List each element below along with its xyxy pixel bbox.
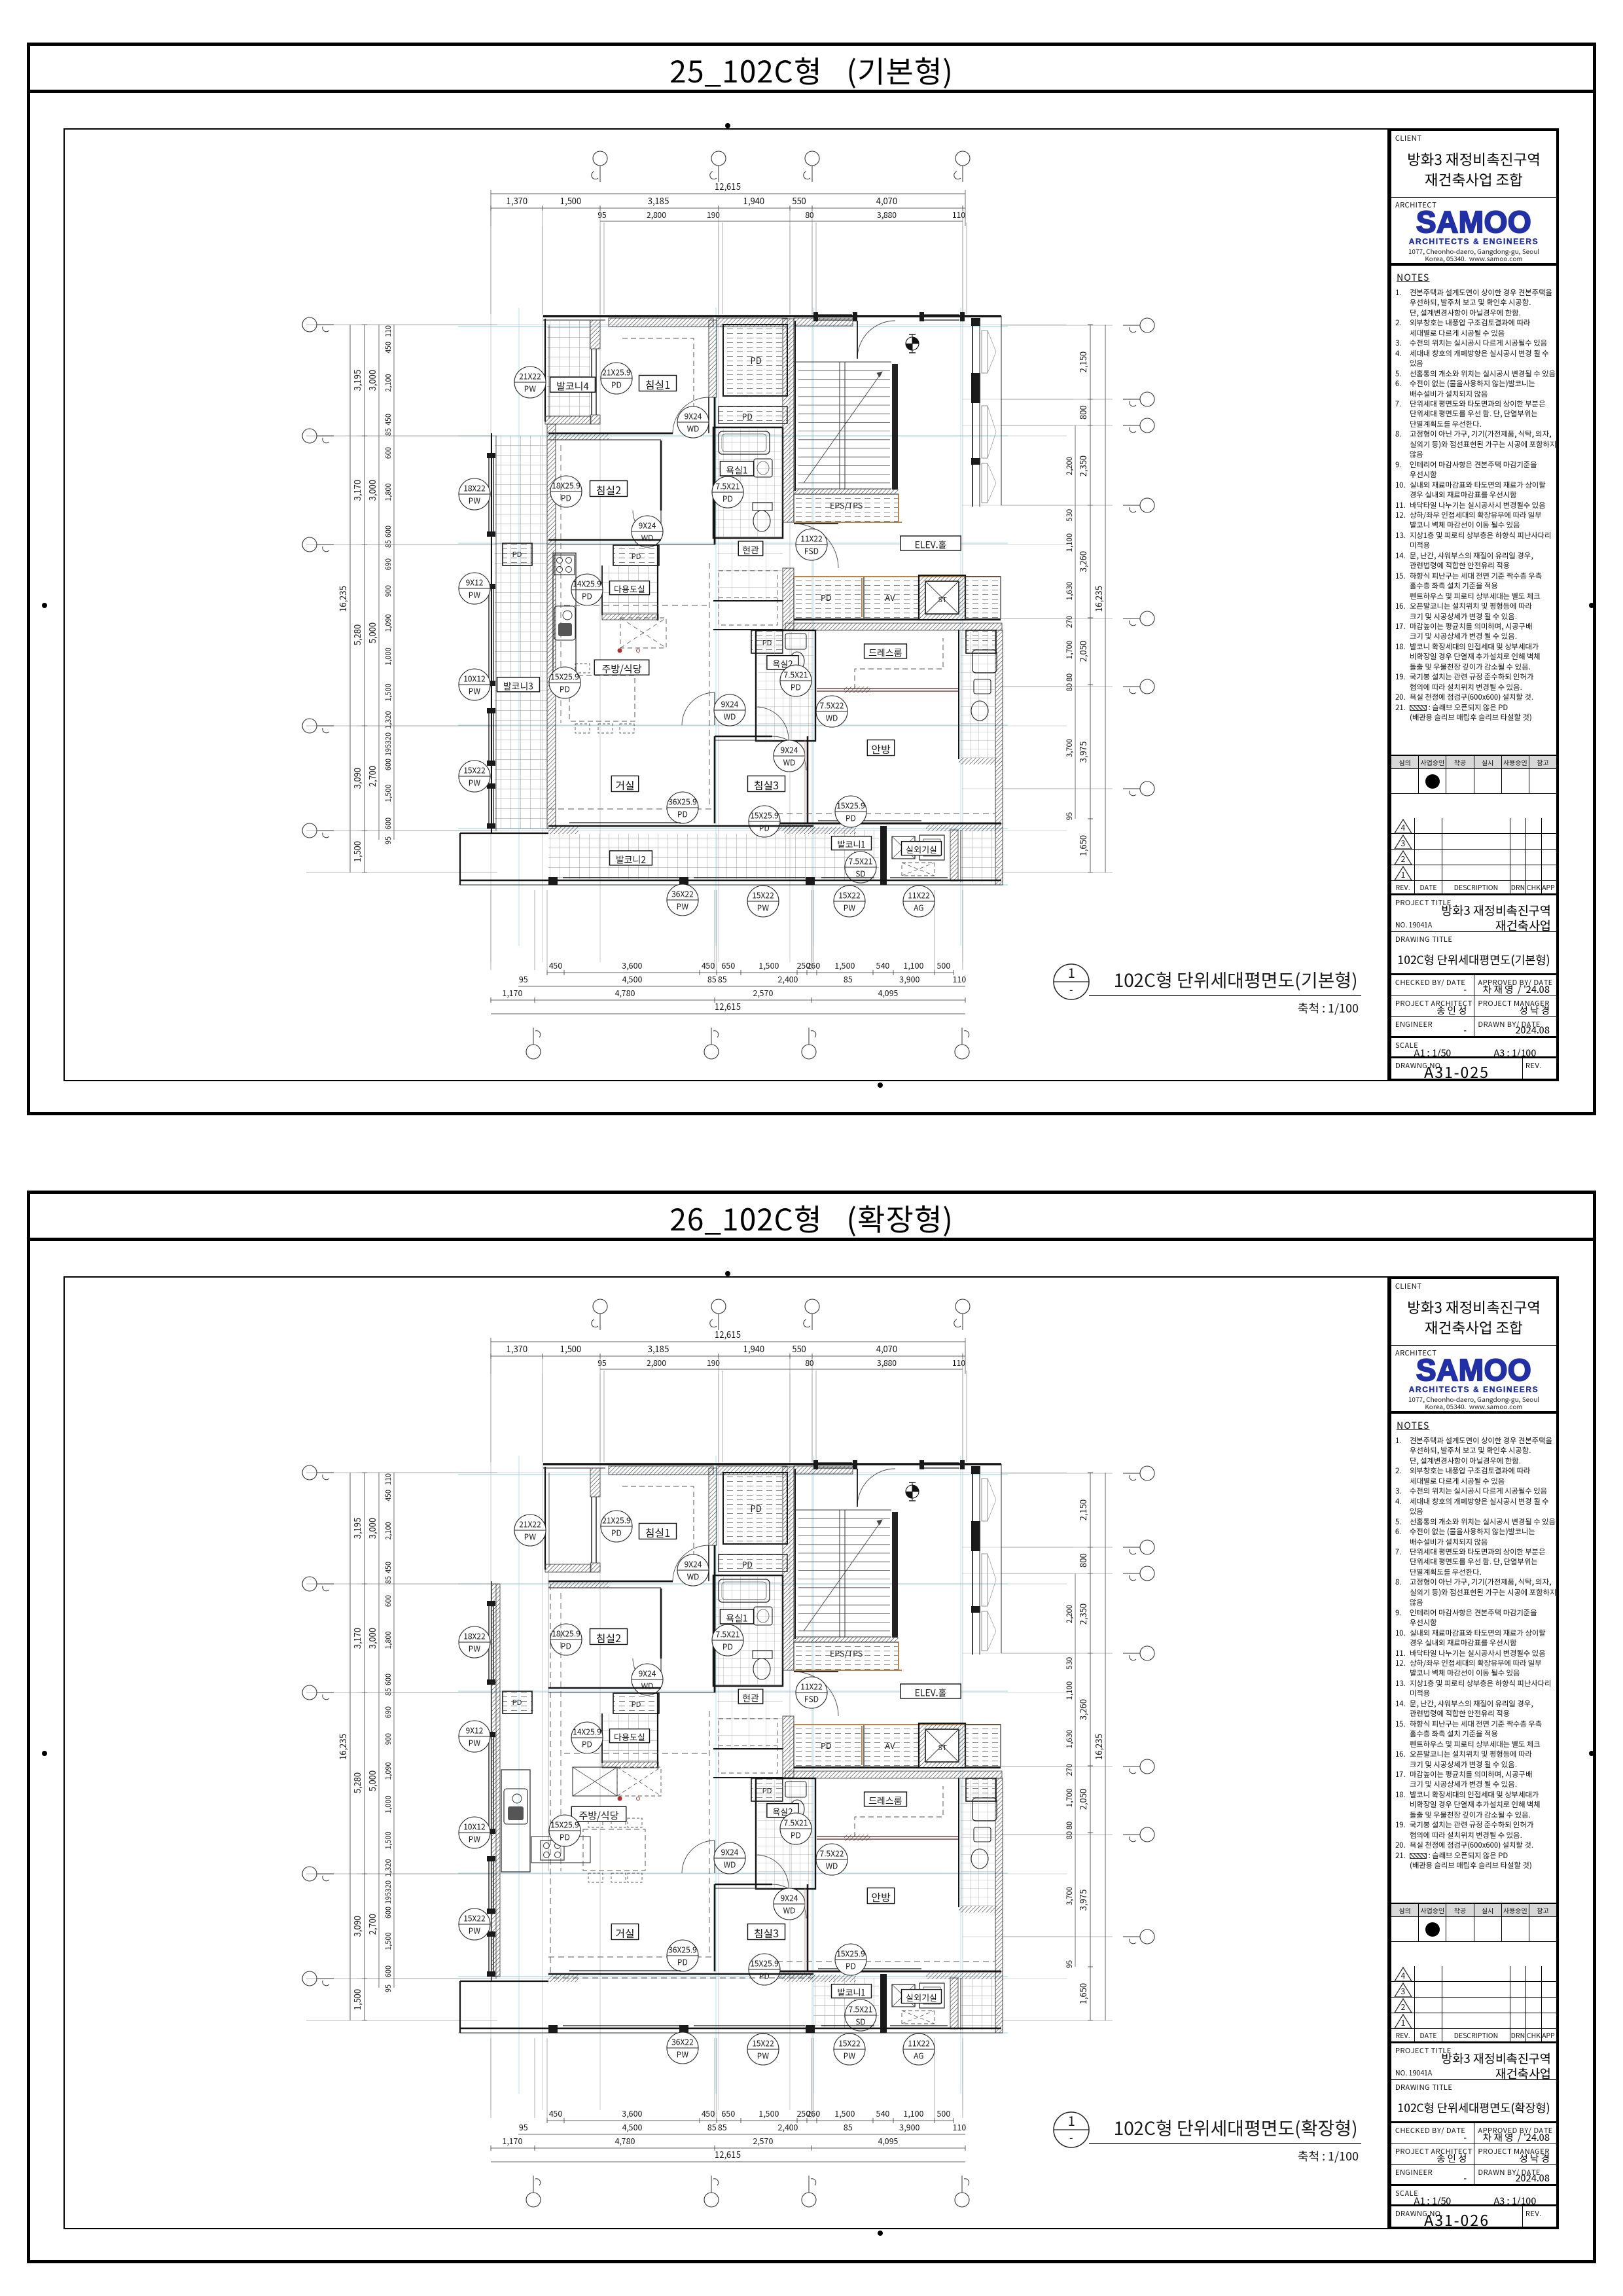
svg-text:85: 85 xyxy=(383,428,393,436)
svg-text:PD: PD xyxy=(561,493,571,504)
svg-text:16,235: 16,235 xyxy=(336,586,349,612)
svg-text:95: 95 xyxy=(519,2121,528,2133)
svg-text:침실3: 침실3 xyxy=(754,1925,779,1941)
svg-text:1,800: 1,800 xyxy=(383,1631,393,1649)
svg-text:110: 110 xyxy=(383,325,393,337)
svg-text:WD: WD xyxy=(724,1859,736,1871)
svg-text:축척 : 1/100: 축척 : 1/100 xyxy=(1298,999,1359,1016)
svg-text:5,280: 5,280 xyxy=(351,624,363,646)
svg-text:2,570: 2,570 xyxy=(753,986,773,999)
svg-text:7.5X22: 7.5X22 xyxy=(820,700,844,711)
svg-text:690: 690 xyxy=(383,558,393,570)
svg-text:PW: PW xyxy=(524,384,537,395)
svg-text:주방/식당: 주방/식당 xyxy=(579,1809,618,1823)
svg-text:1,370: 1,370 xyxy=(507,194,527,207)
svg-text:9X24: 9X24 xyxy=(721,1847,740,1858)
svg-text:ST: ST xyxy=(938,1742,947,1753)
svg-text:PD: PD xyxy=(846,1961,856,1972)
svg-text:PW: PW xyxy=(757,903,770,914)
svg-text:WD: WD xyxy=(687,423,700,435)
svg-text:PW: PW xyxy=(469,1834,481,1845)
svg-text:450: 450 xyxy=(549,2107,563,2119)
svg-text:12,615: 12,615 xyxy=(715,2148,741,2161)
svg-text:PW: PW xyxy=(757,2051,770,2062)
svg-text:14X25.9: 14X25.9 xyxy=(573,1727,601,1738)
svg-text:600: 600 xyxy=(383,1595,393,1607)
svg-text:ST: ST xyxy=(938,594,947,605)
svg-text:PW: PW xyxy=(469,686,481,697)
svg-text:1,500: 1,500 xyxy=(834,959,855,971)
svg-text:600: 600 xyxy=(383,447,393,459)
svg-text:85: 85 xyxy=(707,973,717,985)
svg-text:15X25.9: 15X25.9 xyxy=(836,800,865,812)
svg-text:11X22: 11X22 xyxy=(800,1681,823,1693)
svg-text:4,500: 4,500 xyxy=(622,973,642,985)
svg-text:2,100: 2,100 xyxy=(383,374,393,391)
svg-text:거실: 거실 xyxy=(615,777,634,793)
svg-text:9X24: 9X24 xyxy=(781,745,799,756)
svg-text:600: 600 xyxy=(383,1965,393,1977)
svg-text:80: 80 xyxy=(1064,683,1075,692)
svg-text:110: 110 xyxy=(952,209,965,221)
svg-text:1,650: 1,650 xyxy=(1077,1983,1089,2004)
svg-text:450: 450 xyxy=(383,414,393,425)
svg-text:450: 450 xyxy=(702,959,715,971)
svg-text:80: 80 xyxy=(1064,673,1075,682)
svg-text:안방: 안방 xyxy=(871,741,891,757)
svg-text:15X25.9: 15X25.9 xyxy=(836,1948,865,1960)
svg-text:PD: PD xyxy=(632,551,641,562)
svg-text:1: 1 xyxy=(1067,963,1075,982)
svg-text:21X22: 21X22 xyxy=(519,1519,541,1530)
svg-text:600: 600 xyxy=(383,817,393,829)
svg-text:85: 85 xyxy=(707,2121,717,2133)
svg-text:600: 600 xyxy=(383,1674,393,1685)
svg-text:WD: WD xyxy=(724,711,736,723)
svg-text:900: 900 xyxy=(383,585,393,597)
svg-text:7.5X21: 7.5X21 xyxy=(849,856,873,867)
svg-text:4,070: 4,070 xyxy=(876,194,897,207)
svg-text:AG: AG xyxy=(914,2051,924,2062)
svg-text:PD: PD xyxy=(561,1641,571,1652)
svg-text:450: 450 xyxy=(383,1490,393,1501)
svg-text:195: 195 xyxy=(383,744,393,756)
svg-text:5,280: 5,280 xyxy=(351,1772,363,1794)
svg-text:PW: PW xyxy=(469,495,481,507)
svg-text:PD: PD xyxy=(750,1502,761,1515)
svg-text:540: 540 xyxy=(876,959,890,971)
svg-text:PW: PW xyxy=(677,901,689,912)
svg-text:1,100: 1,100 xyxy=(903,959,923,971)
svg-text:3,170: 3,170 xyxy=(351,1628,363,1649)
svg-text:3,185: 3,185 xyxy=(648,1342,669,1355)
svg-text:7.5X22: 7.5X22 xyxy=(820,1848,844,1859)
svg-text:3,195: 3,195 xyxy=(351,1518,363,1539)
svg-text:1,090: 1,090 xyxy=(383,1762,393,1780)
svg-text:18X25.9: 18X25.9 xyxy=(552,1628,580,1640)
svg-text:95: 95 xyxy=(383,836,393,844)
svg-text:욕실1: 욕실1 xyxy=(726,1611,748,1624)
svg-text:PD: PD xyxy=(611,1528,622,1539)
svg-text:85: 85 xyxy=(844,2121,853,2133)
svg-text:1,170: 1,170 xyxy=(502,986,522,999)
svg-text:18X25.9: 18X25.9 xyxy=(552,480,580,492)
svg-text:1,800: 1,800 xyxy=(383,483,393,501)
svg-text:3,170: 3,170 xyxy=(351,480,363,501)
svg-text:36X25.9: 36X25.9 xyxy=(668,1945,697,1956)
svg-text:2,200: 2,200 xyxy=(1064,457,1075,476)
svg-text:1,650: 1,650 xyxy=(1077,835,1089,856)
svg-text:320: 320 xyxy=(383,732,393,744)
svg-text:110: 110 xyxy=(953,973,967,985)
svg-text:800: 800 xyxy=(1077,1553,1089,1568)
svg-text:4,500: 4,500 xyxy=(622,2121,642,2133)
svg-text:1,500: 1,500 xyxy=(758,959,779,971)
svg-text:7.5X21: 7.5X21 xyxy=(849,2004,873,2015)
svg-text:침실2: 침실2 xyxy=(596,1630,621,1645)
svg-text:3,700: 3,700 xyxy=(1064,739,1075,759)
svg-text:ELEV.홀: ELEV.홀 xyxy=(915,538,947,551)
svg-text:1,700: 1,700 xyxy=(1064,641,1075,660)
svg-text:드레스룸: 드레스룸 xyxy=(868,1794,902,1807)
svg-text:36X22: 36X22 xyxy=(671,889,694,900)
svg-text:WD: WD xyxy=(641,1681,654,1692)
svg-text:1,700: 1,700 xyxy=(1064,1789,1075,1808)
svg-text:PW: PW xyxy=(469,1926,481,1937)
svg-text:AG: AG xyxy=(914,903,924,914)
svg-text:4,095: 4,095 xyxy=(878,986,898,999)
svg-text:3,600: 3,600 xyxy=(622,2107,642,2119)
svg-text:9X24: 9X24 xyxy=(685,411,703,422)
svg-text:발코니2: 발코니2 xyxy=(616,853,647,866)
svg-text:PD: PD xyxy=(791,682,801,693)
svg-text:21X25.9: 21X25.9 xyxy=(602,1515,631,1526)
svg-text:110: 110 xyxy=(953,2121,967,2133)
svg-text:110: 110 xyxy=(952,1357,965,1369)
svg-text:3,975: 3,975 xyxy=(1077,1890,1089,1910)
svg-text:2,100: 2,100 xyxy=(383,1522,393,1539)
svg-text:450: 450 xyxy=(549,959,563,971)
svg-text:9X24: 9X24 xyxy=(639,520,657,531)
svg-text:11X22: 11X22 xyxy=(800,533,823,545)
svg-text:3,000: 3,000 xyxy=(366,1518,378,1539)
svg-text:WD: WD xyxy=(687,1571,700,1583)
svg-text:2,700: 2,700 xyxy=(366,1914,378,1935)
svg-text:16,235: 16,235 xyxy=(336,1734,349,1760)
svg-text:1,500: 1,500 xyxy=(383,1932,393,1950)
svg-text:1,500: 1,500 xyxy=(383,1831,393,1849)
svg-text:15X22: 15X22 xyxy=(463,1913,486,1924)
svg-text:80: 80 xyxy=(1064,1821,1075,1830)
svg-text:PD: PD xyxy=(512,549,522,560)
svg-text:1,370: 1,370 xyxy=(507,1342,527,1355)
svg-text:190: 190 xyxy=(707,1357,720,1369)
svg-text:PW: PW xyxy=(469,1643,481,1655)
svg-text:95: 95 xyxy=(1064,1960,1075,1969)
svg-text:3,880: 3,880 xyxy=(877,209,897,221)
svg-text:PW: PW xyxy=(677,2049,689,2060)
svg-text:PD: PD xyxy=(742,411,753,422)
svg-text:270: 270 xyxy=(1064,615,1075,628)
svg-text:-: - xyxy=(1069,2129,1073,2145)
svg-text:3,900: 3,900 xyxy=(899,973,919,985)
svg-text:1,000: 1,000 xyxy=(383,647,393,665)
svg-text:PD: PD xyxy=(512,1697,522,1708)
svg-text:ELEV.홀: ELEV.홀 xyxy=(915,1686,947,1699)
svg-text:PD: PD xyxy=(821,1739,832,1751)
svg-text:3,700: 3,700 xyxy=(1064,1887,1075,1907)
svg-text:21X22: 21X22 xyxy=(519,371,541,382)
svg-text:600: 600 xyxy=(383,759,393,770)
svg-text:2,800: 2,800 xyxy=(647,1357,666,1369)
svg-text:WD: WD xyxy=(641,533,654,544)
svg-text:PW: PW xyxy=(469,590,481,601)
svg-text:21X25.9: 21X25.9 xyxy=(602,367,631,378)
svg-text:2,050: 2,050 xyxy=(1077,641,1089,662)
svg-text:15X22: 15X22 xyxy=(752,2038,774,2049)
svg-text:AV: AV xyxy=(885,591,896,603)
svg-text:95: 95 xyxy=(597,209,606,221)
svg-text:10X12: 10X12 xyxy=(463,673,486,685)
svg-text:9X12: 9X12 xyxy=(466,577,484,588)
svg-text:3,975: 3,975 xyxy=(1077,742,1089,762)
svg-text:600: 600 xyxy=(383,526,393,537)
svg-text:9X12: 9X12 xyxy=(466,1725,484,1736)
svg-text:1,320: 1,320 xyxy=(383,711,393,728)
svg-text:2,800: 2,800 xyxy=(647,209,666,221)
svg-text:2,050: 2,050 xyxy=(1077,1789,1089,1810)
svg-text:1,630: 1,630 xyxy=(1064,1730,1075,1749)
svg-text:침실3: 침실3 xyxy=(754,777,779,793)
svg-text:15X25.9: 15X25.9 xyxy=(750,810,779,821)
svg-text:650: 650 xyxy=(722,959,736,971)
svg-text:85: 85 xyxy=(383,1576,393,1584)
svg-text:1,500: 1,500 xyxy=(560,194,581,207)
svg-text:WD: WD xyxy=(826,713,838,724)
svg-text:800: 800 xyxy=(1077,405,1089,420)
svg-text:500: 500 xyxy=(936,959,951,971)
svg-text:3,600: 3,600 xyxy=(622,959,642,971)
svg-text:450: 450 xyxy=(702,2107,715,2119)
svg-text:2,350: 2,350 xyxy=(1077,1604,1089,1624)
svg-text:550: 550 xyxy=(791,194,806,207)
svg-text:9X24: 9X24 xyxy=(685,1559,703,1570)
svg-text:95: 95 xyxy=(597,1357,606,1369)
svg-text:2,570: 2,570 xyxy=(753,2134,773,2147)
svg-text:1,170: 1,170 xyxy=(502,2134,522,2147)
svg-text:PD: PD xyxy=(821,591,832,603)
svg-text:PD: PD xyxy=(759,1971,770,1982)
svg-text:1,500: 1,500 xyxy=(383,683,393,701)
svg-text:다용도실: 다용도실 xyxy=(614,583,645,595)
svg-text:80: 80 xyxy=(1064,1831,1075,1840)
svg-text:PD: PD xyxy=(791,1830,801,1841)
svg-text:PD: PD xyxy=(582,591,592,602)
svg-text:PW: PW xyxy=(844,903,856,914)
svg-text:270: 270 xyxy=(1064,1763,1075,1776)
svg-text:3,000: 3,000 xyxy=(366,370,378,391)
svg-text:11X22: 11X22 xyxy=(908,890,930,901)
svg-text:1,940: 1,940 xyxy=(743,1342,764,1355)
svg-text:1,100: 1,100 xyxy=(1064,1681,1075,1700)
svg-text:PW: PW xyxy=(844,2051,856,2062)
svg-text:2,150: 2,150 xyxy=(1077,351,1089,372)
svg-text:1,090: 1,090 xyxy=(383,614,393,632)
svg-text:드레스룸: 드레스룸 xyxy=(868,646,902,659)
svg-text:80: 80 xyxy=(805,209,813,221)
svg-text:95: 95 xyxy=(383,1984,393,1992)
svg-text:3,260: 3,260 xyxy=(1077,551,1089,572)
svg-text:3,900: 3,900 xyxy=(899,2121,919,2133)
svg-text:PW: PW xyxy=(469,778,481,789)
svg-text:5,000: 5,000 xyxy=(366,622,378,644)
svg-text:발코니4: 발코니4 xyxy=(556,380,589,393)
svg-text:12,615: 12,615 xyxy=(715,1000,741,1013)
svg-text:PD: PD xyxy=(560,1832,570,1843)
svg-text:PD: PD xyxy=(722,1641,733,1653)
svg-text:15X22: 15X22 xyxy=(838,2038,861,2049)
svg-text:거실: 거실 xyxy=(615,1925,634,1941)
svg-text:600: 600 xyxy=(383,1907,393,1918)
svg-text:85: 85 xyxy=(383,540,393,548)
svg-text:WD: WD xyxy=(826,1861,838,1872)
svg-text:85: 85 xyxy=(383,1688,393,1696)
svg-text:1,500: 1,500 xyxy=(834,2107,855,2119)
svg-text:530: 530 xyxy=(1064,509,1075,521)
svg-text:침실1: 침실1 xyxy=(645,376,670,392)
svg-text:2,150: 2,150 xyxy=(1077,1499,1089,1520)
svg-text:FSD: FSD xyxy=(804,1694,819,1705)
svg-text:3,000: 3,000 xyxy=(366,1628,378,1649)
svg-text:PD: PD xyxy=(582,1739,592,1750)
svg-text:현관: 현관 xyxy=(741,543,759,556)
svg-text:195: 195 xyxy=(383,1892,393,1904)
svg-text:2,350: 2,350 xyxy=(1077,456,1089,476)
svg-text:EPS/TPS: EPS/TPS xyxy=(830,499,863,511)
svg-text:PD: PD xyxy=(846,813,856,824)
svg-text:85: 85 xyxy=(718,973,727,985)
svg-text:현관: 현관 xyxy=(741,1691,759,1704)
svg-text:PD: PD xyxy=(560,684,570,695)
svg-text:PD: PD xyxy=(632,1699,641,1710)
svg-text:95: 95 xyxy=(519,973,528,985)
svg-text:36X22: 36X22 xyxy=(671,2037,694,2048)
svg-text:900: 900 xyxy=(383,1733,393,1745)
svg-text:4,780: 4,780 xyxy=(615,986,635,999)
svg-text:14X25.9: 14X25.9 xyxy=(573,579,601,590)
svg-text:80: 80 xyxy=(805,1357,813,1369)
svg-text:15X25.9: 15X25.9 xyxy=(550,672,579,683)
svg-text:1,320: 1,320 xyxy=(383,1859,393,1876)
svg-text:190: 190 xyxy=(707,209,720,221)
svg-text:PD: PD xyxy=(722,493,733,505)
svg-text:9X24: 9X24 xyxy=(639,1668,657,1679)
svg-text:320: 320 xyxy=(383,1880,393,1892)
svg-text:530: 530 xyxy=(1064,1657,1075,1669)
svg-text:WD: WD xyxy=(783,757,796,768)
svg-text:15X22: 15X22 xyxy=(463,765,486,776)
svg-text:축척 : 1/100: 축척 : 1/100 xyxy=(1298,2147,1359,2164)
svg-text:1,500: 1,500 xyxy=(560,1342,581,1355)
svg-text:110: 110 xyxy=(383,1473,393,1485)
svg-text:7.5X21: 7.5X21 xyxy=(784,670,808,681)
svg-text:95: 95 xyxy=(1064,812,1075,821)
svg-text:4,095: 4,095 xyxy=(878,2134,898,2147)
svg-text:4,780: 4,780 xyxy=(615,2134,635,2147)
svg-text:9X24: 9X24 xyxy=(721,699,740,710)
svg-text:36X25.9: 36X25.9 xyxy=(668,797,697,808)
svg-text:550: 550 xyxy=(791,1342,806,1355)
svg-text:7.5X21: 7.5X21 xyxy=(716,481,740,492)
svg-text:안방: 안방 xyxy=(871,1889,891,1905)
svg-text:WD: WD xyxy=(783,1905,796,1916)
svg-text:1,500: 1,500 xyxy=(758,2107,779,2119)
svg-text:85: 85 xyxy=(844,973,853,985)
svg-text:발코니3: 발코니3 xyxy=(503,679,534,692)
svg-text:침실2: 침실2 xyxy=(596,482,621,497)
svg-text:침실1: 침실1 xyxy=(645,1524,670,1540)
svg-text:-: - xyxy=(1069,981,1073,997)
svg-text:102C형 단위세대평면도(확장형): 102C형 단위세대평면도(확장형) xyxy=(1113,2115,1357,2141)
svg-text:발코니1: 발코니1 xyxy=(837,838,865,850)
svg-text:4,070: 4,070 xyxy=(876,1342,897,1355)
svg-text:9X24: 9X24 xyxy=(781,1893,799,1904)
svg-text:3,185: 3,185 xyxy=(648,194,669,207)
svg-text:1,500: 1,500 xyxy=(383,784,393,802)
svg-text:PD: PD xyxy=(742,1559,753,1570)
svg-text:15X25.9: 15X25.9 xyxy=(750,1958,779,1969)
svg-text:1,100: 1,100 xyxy=(1064,533,1075,552)
svg-text:690: 690 xyxy=(383,1706,393,1718)
svg-text:PD: PD xyxy=(677,1957,688,1968)
svg-text:1,940: 1,940 xyxy=(743,194,764,207)
svg-text:7.5X21: 7.5X21 xyxy=(784,1818,808,1829)
svg-text:욕실1: 욕실1 xyxy=(726,463,748,476)
svg-text:15X22: 15X22 xyxy=(752,890,774,901)
svg-text:2,700: 2,700 xyxy=(366,766,378,787)
svg-text:3,195: 3,195 xyxy=(351,370,363,391)
svg-text:18X22: 18X22 xyxy=(463,483,486,494)
svg-text:15X25.9: 15X25.9 xyxy=(550,1820,579,1831)
svg-text:16,235: 16,235 xyxy=(1092,1734,1105,1760)
svg-text:5,000: 5,000 xyxy=(366,1770,378,1792)
svg-text:PD: PD xyxy=(750,354,761,367)
svg-text:500: 500 xyxy=(936,2107,951,2119)
svg-text:1,630: 1,630 xyxy=(1064,582,1075,601)
svg-text:실외기실: 실외기실 xyxy=(906,1991,937,2003)
svg-text:450: 450 xyxy=(383,1562,393,1573)
svg-text:10X12: 10X12 xyxy=(463,1821,486,1833)
svg-text:PW: PW xyxy=(469,1738,481,1749)
svg-text:15X22: 15X22 xyxy=(838,890,861,901)
svg-text:1: 1 xyxy=(1067,2111,1075,2130)
svg-text:3,260: 3,260 xyxy=(1077,1699,1089,1720)
svg-text:실외기실: 실외기실 xyxy=(906,843,937,855)
svg-text:450: 450 xyxy=(383,342,393,353)
svg-text:3,090: 3,090 xyxy=(351,768,363,789)
svg-text:2,400: 2,400 xyxy=(777,973,798,985)
svg-text:주방/식당: 주방/식당 xyxy=(601,662,641,676)
svg-text:540: 540 xyxy=(876,2107,890,2119)
svg-text:PD: PD xyxy=(677,809,688,820)
svg-text:PD: PD xyxy=(611,380,622,391)
svg-text:발코니1: 발코니1 xyxy=(837,1986,865,1998)
svg-text:1,000: 1,000 xyxy=(383,1795,393,1813)
svg-text:7.5X21: 7.5X21 xyxy=(716,1629,740,1640)
svg-text:PW: PW xyxy=(524,1532,537,1543)
svg-text:3,090: 3,090 xyxy=(351,1916,363,1937)
svg-text:FSD: FSD xyxy=(804,546,819,557)
